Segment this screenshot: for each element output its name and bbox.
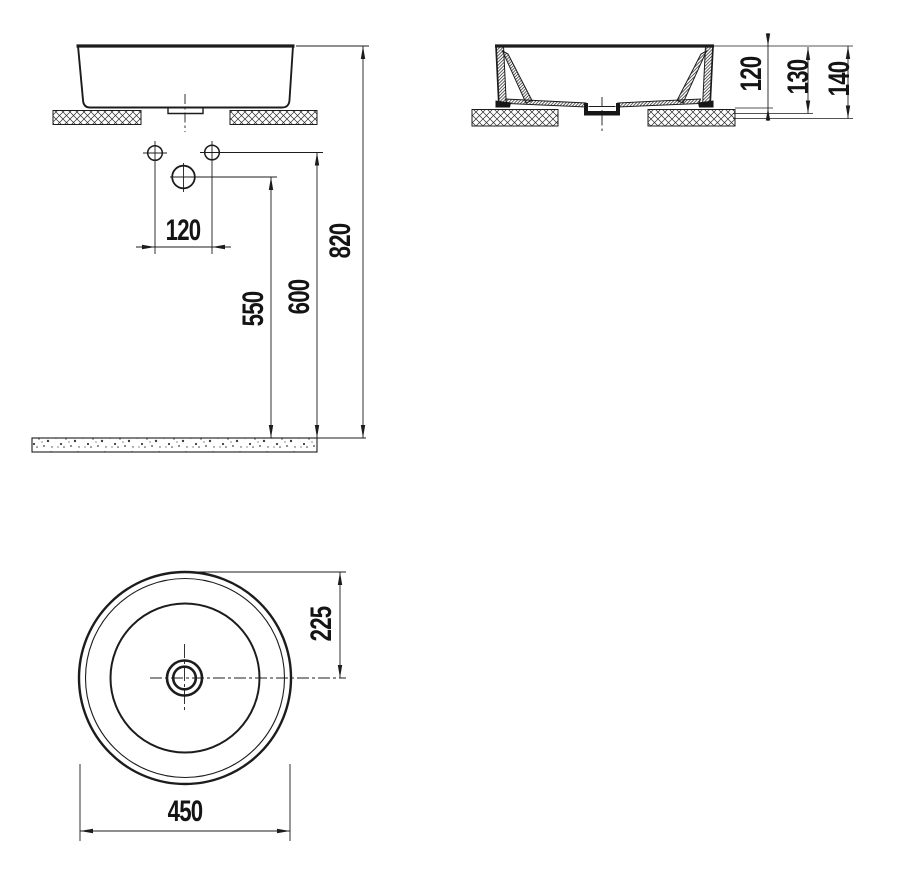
basin-inner-rim [86,579,285,778]
dim-label-hole-spacing: 120 [166,216,201,246]
dim-label-height-rim: 820 [326,224,356,259]
dim-label-height-holes: 600 [285,280,315,315]
section-bowl-floor-left [506,99,587,107]
dim-label-depth-total: 140 [825,62,855,97]
section-counter-left [472,110,558,127]
section-strut-right [677,51,707,103]
counter-hatch-left [53,111,141,125]
counter-hatch-right [230,111,317,125]
section-strut-left [503,51,533,103]
basin-front-outline [78,46,293,108]
dim-label-depth-mid: 130 [784,60,814,95]
drawing-svg [0,0,909,881]
dim-label-rim-above-counter: 120 [737,57,767,92]
dim-label-diameter: 450 [168,797,203,827]
floor-strip [32,438,317,452]
dim-label-radius: 225 [307,607,337,642]
dim-label-height-drain: 550 [239,292,269,327]
section-foot-right [698,101,714,108]
technical-drawing-canvas: 120 550 600 820 120 130 140 225 450 [0,0,909,881]
front-view [32,46,369,452]
section-bowl-floor-right [618,99,701,107]
section-counter-right [648,110,735,127]
